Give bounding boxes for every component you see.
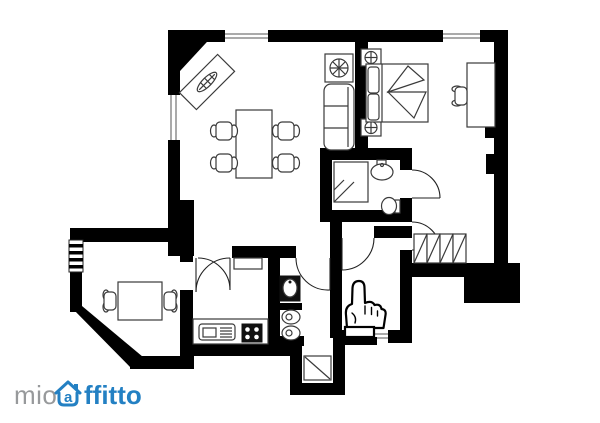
plant-table-icon bbox=[325, 54, 353, 82]
house-logo-icon: a bbox=[56, 382, 80, 406]
washbasin-icon bbox=[371, 160, 393, 180]
bathroom1-fixtures bbox=[334, 160, 400, 215]
window-icon bbox=[225, 30, 268, 42]
door-swing-icon bbox=[342, 238, 374, 270]
bidet-icon bbox=[282, 326, 300, 340]
dining-chair-icon bbox=[273, 154, 300, 172]
kitchen-cabinet bbox=[234, 258, 262, 269]
door-swing-icon bbox=[198, 258, 230, 290]
double-bed-icon bbox=[366, 64, 428, 122]
sofa-icon bbox=[324, 84, 354, 150]
toilet-icon bbox=[382, 198, 401, 215]
stove-icon bbox=[242, 324, 262, 342]
washbasin-icon bbox=[280, 276, 300, 301]
window-icon bbox=[168, 95, 180, 140]
toilet-icon bbox=[282, 310, 300, 324]
door-swing-icon bbox=[196, 258, 230, 292]
logo-house-letter: a bbox=[64, 389, 73, 406]
shower-icon bbox=[334, 162, 368, 202]
table-icon bbox=[118, 282, 162, 320]
bathroom2-fixtures bbox=[280, 276, 331, 380]
study-room-furniture bbox=[69, 240, 177, 320]
dining-table-icon bbox=[236, 110, 272, 178]
logo-prefix: mio bbox=[14, 380, 57, 410]
floorplan-screenshot: mio a ffitto bbox=[0, 0, 600, 423]
window-icon bbox=[443, 30, 480, 42]
shower-icon bbox=[304, 356, 331, 380]
wardrobe-icon bbox=[414, 234, 466, 263]
dining-chair-icon bbox=[211, 122, 238, 140]
floorplan-image: mio a ffitto bbox=[0, 0, 600, 423]
dining-chair-icon bbox=[211, 154, 238, 172]
chair-icon bbox=[164, 290, 177, 312]
room-door-opening bbox=[180, 262, 193, 290]
desk-chair-icon bbox=[452, 86, 467, 106]
chair-icon bbox=[103, 290, 116, 312]
kitchen-sink-icon bbox=[199, 324, 235, 340]
logo-suffix: ffitto bbox=[84, 380, 142, 410]
dining-chair-icon bbox=[273, 122, 300, 140]
door-swing-icon bbox=[296, 258, 330, 290]
radiator-icon bbox=[69, 240, 83, 272]
mioaffitto-logo: mio a ffitto bbox=[14, 380, 142, 410]
door-swing-icon bbox=[412, 170, 440, 198]
desk-icon bbox=[467, 63, 495, 127]
walls bbox=[70, 30, 520, 395]
partition-wall bbox=[280, 303, 302, 310]
